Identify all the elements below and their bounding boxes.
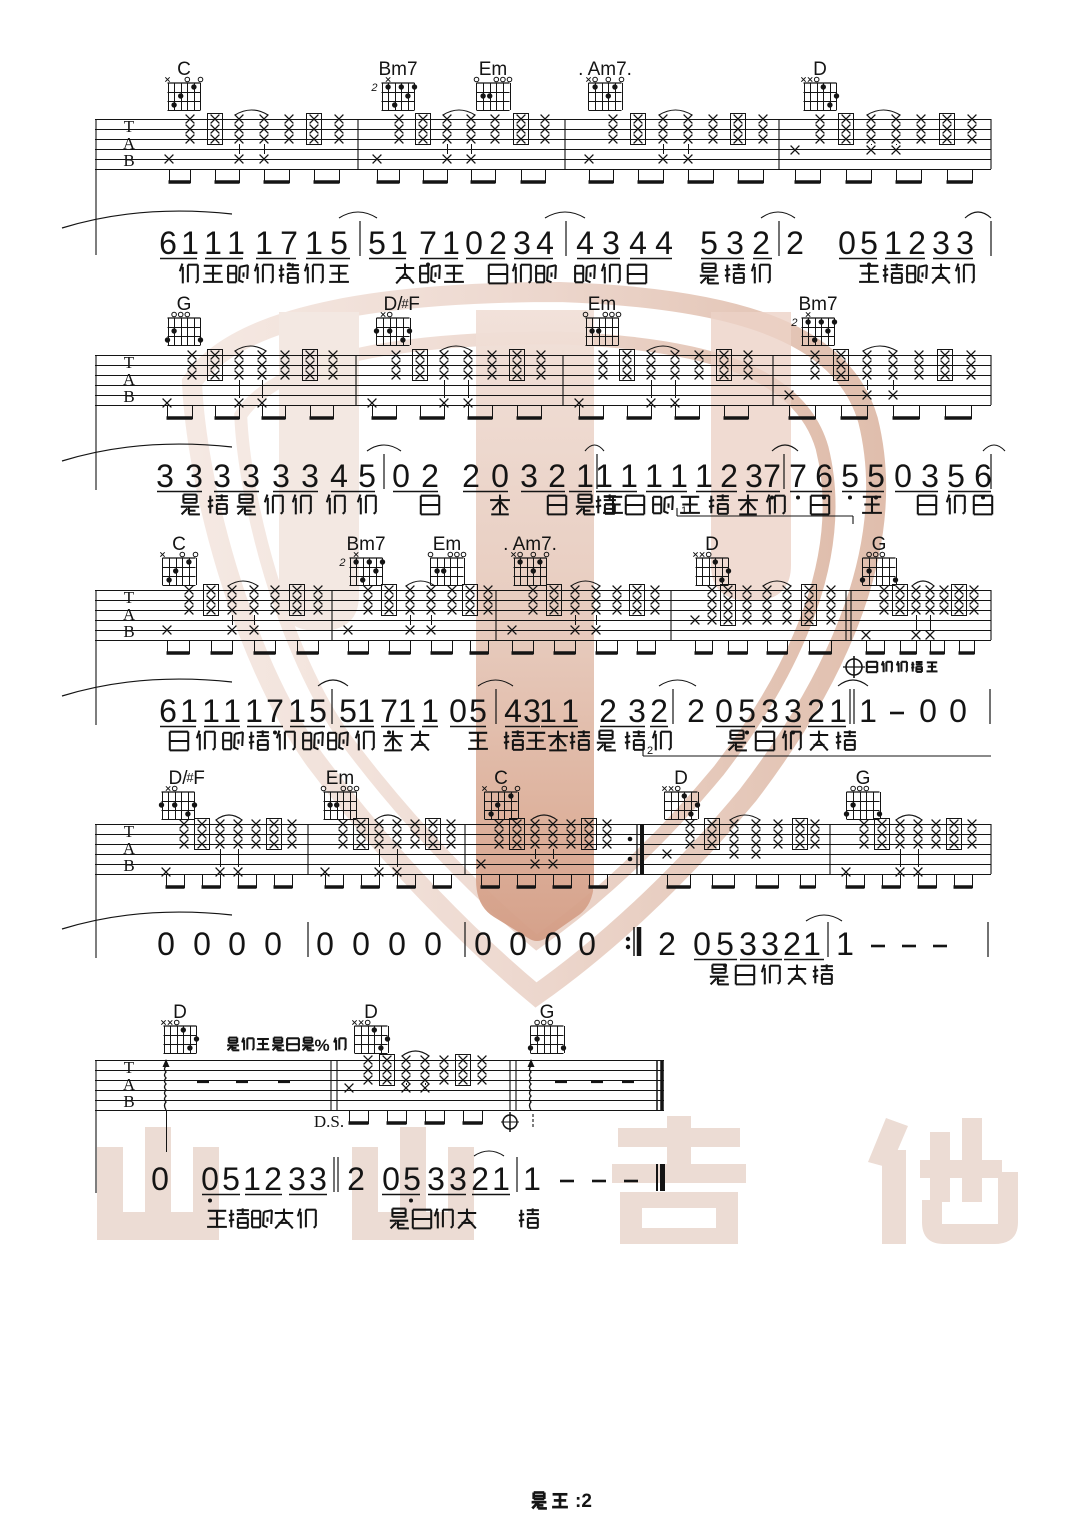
svg-text:3: 3: [956, 225, 974, 261]
svg-text:1: 1: [576, 458, 594, 494]
svg-text::2: :2: [575, 1491, 592, 1512]
svg-text:0: 0: [838, 225, 856, 261]
svg-text:1: 1: [288, 693, 306, 729]
svg-text:2: 2: [471, 1161, 489, 1197]
svg-text:7: 7: [763, 458, 781, 494]
svg-text:4: 4: [576, 225, 594, 261]
svg-text:6: 6: [159, 225, 177, 261]
svg-text:3: 3: [513, 225, 531, 261]
svg-text:0: 0: [352, 926, 370, 962]
svg-text:7: 7: [380, 693, 398, 729]
svg-text:1: 1: [539, 693, 557, 729]
svg-text:Bm7: Bm7: [798, 294, 837, 315]
svg-text:1: 1: [204, 225, 222, 261]
svg-text:3: 3: [242, 458, 260, 494]
svg-text:3: 3: [185, 458, 203, 494]
svg-text:5: 5: [330, 225, 348, 261]
svg-text:2: 2: [647, 745, 653, 757]
svg-text:2: 2: [489, 225, 507, 261]
svg-text:3: 3: [309, 1161, 327, 1197]
svg-text:0: 0: [157, 926, 175, 962]
svg-text:C: C: [177, 59, 191, 80]
svg-text:2: 2: [338, 557, 345, 569]
svg-text:3: 3: [726, 225, 744, 261]
svg-text:5: 5: [469, 693, 487, 729]
svg-text:4: 4: [536, 225, 554, 261]
svg-text:3: 3: [932, 225, 950, 261]
svg-text:1: 1: [181, 225, 199, 261]
svg-text:1: 1: [255, 225, 273, 261]
svg-text:2: 2: [347, 1161, 365, 1197]
svg-text:5: 5: [358, 458, 376, 494]
svg-text:3: 3: [602, 225, 620, 261]
svg-text:3: 3: [520, 458, 538, 494]
svg-text:3: 3: [156, 458, 174, 494]
svg-text:7: 7: [419, 225, 437, 261]
svg-text:B: B: [123, 387, 134, 406]
svg-text:2: 2: [599, 693, 617, 729]
svg-text:D: D: [364, 1002, 378, 1023]
svg-text:3: 3: [739, 926, 757, 962]
svg-text:1: 1: [523, 1161, 541, 1197]
svg-text:2: 2: [783, 926, 801, 962]
svg-text:B: B: [123, 856, 134, 875]
svg-text:2: 2: [658, 926, 676, 962]
svg-text:6: 6: [159, 693, 177, 729]
svg-text:4: 4: [504, 693, 522, 729]
svg-text:D: D: [674, 768, 688, 789]
svg-text:D/: D/: [384, 294, 404, 315]
svg-text:2: 2: [807, 693, 825, 729]
svg-text:0: 0: [392, 458, 410, 494]
svg-text:4: 4: [629, 225, 647, 261]
svg-text:D/: D/: [169, 768, 189, 789]
svg-text:2: 2: [752, 225, 770, 261]
svg-text:2: 2: [687, 693, 705, 729]
svg-text:5: 5: [222, 1161, 240, 1197]
svg-text:5: 5: [841, 458, 859, 494]
svg-text:0: 0: [693, 926, 711, 962]
svg-text:0: 0: [491, 458, 509, 494]
svg-text:0: 0: [894, 458, 912, 494]
svg-text:B: B: [123, 622, 134, 641]
svg-text:1: 1: [595, 458, 613, 494]
svg-text:0: 0: [474, 926, 492, 962]
svg-text:7: 7: [789, 458, 807, 494]
svg-text:1: 1: [836, 926, 854, 962]
svg-text:0: 0: [388, 926, 406, 962]
svg-text:5: 5: [403, 1161, 421, 1197]
svg-text:1: 1: [859, 693, 877, 729]
svg-text:1: 1: [227, 225, 245, 261]
svg-text:3: 3: [288, 1161, 306, 1197]
svg-text:0: 0: [151, 1161, 169, 1197]
svg-text:D: D: [705, 534, 719, 555]
svg-text:1: 1: [223, 693, 241, 729]
svg-text:5: 5: [700, 225, 718, 261]
svg-text:1: 1: [442, 225, 460, 261]
svg-text:3: 3: [921, 458, 939, 494]
svg-text:3: 3: [628, 693, 646, 729]
svg-text:1: 1: [670, 458, 688, 494]
svg-text:1: 1: [305, 225, 323, 261]
svg-text:3: 3: [784, 693, 802, 729]
svg-text:2: 2: [421, 458, 439, 494]
svg-text:5: 5: [309, 693, 327, 729]
svg-text:F: F: [193, 768, 205, 789]
svg-text:0: 0: [193, 926, 211, 962]
svg-text:2: 2: [908, 225, 926, 261]
svg-text:4: 4: [330, 458, 348, 494]
svg-text:3: 3: [427, 1161, 445, 1197]
svg-text:2: 2: [786, 225, 804, 261]
svg-text:0: 0: [424, 926, 442, 962]
svg-text:2: 2: [548, 458, 566, 494]
svg-text:3: 3: [301, 458, 319, 494]
svg-text:4: 4: [655, 225, 673, 261]
svg-text:1: 1: [398, 693, 416, 729]
svg-text:0: 0: [382, 1161, 400, 1197]
svg-text:0: 0: [316, 926, 334, 962]
svg-text:5: 5: [947, 458, 965, 494]
svg-text:1: 1: [357, 693, 375, 729]
svg-text:1: 1: [243, 1161, 261, 1197]
svg-text:. Am7.: . Am7.: [503, 534, 557, 555]
svg-text:1: 1: [180, 693, 198, 729]
svg-text:B: B: [123, 1092, 134, 1111]
svg-text:5: 5: [738, 693, 756, 729]
svg-text:B: B: [123, 151, 134, 170]
svg-text:G: G: [177, 294, 192, 315]
svg-text:3: 3: [272, 458, 290, 494]
svg-text:0: 0: [264, 926, 282, 962]
svg-text:%: %: [314, 1036, 329, 1055]
svg-text:2: 2: [650, 693, 668, 729]
svg-text:G: G: [872, 534, 887, 555]
svg-text:2: 2: [462, 458, 480, 494]
svg-text:0: 0: [578, 926, 596, 962]
svg-text:0: 0: [465, 225, 483, 261]
svg-text:1: 1: [421, 693, 439, 729]
svg-text:0: 0: [201, 1161, 219, 1197]
svg-text:1: 1: [561, 693, 579, 729]
svg-text:7: 7: [266, 693, 284, 729]
svg-text:7: 7: [280, 225, 298, 261]
svg-text:1: 1: [620, 458, 638, 494]
svg-text:2: 2: [720, 458, 738, 494]
svg-text:5: 5: [368, 225, 386, 261]
svg-text:0: 0: [949, 693, 967, 729]
svg-text:5: 5: [716, 926, 734, 962]
svg-text:C: C: [494, 768, 508, 789]
svg-text:Bm7: Bm7: [346, 534, 385, 555]
svg-text:5: 5: [860, 225, 878, 261]
svg-text:G: G: [856, 768, 871, 789]
svg-text:D: D: [813, 59, 827, 80]
svg-text:1: 1: [681, 505, 687, 517]
svg-text:0: 0: [715, 693, 733, 729]
svg-text:D.S.: D.S.: [314, 1112, 344, 1131]
svg-text:3: 3: [761, 926, 779, 962]
svg-text:1: 1: [803, 926, 821, 962]
svg-text:1: 1: [695, 458, 713, 494]
svg-text:0: 0: [449, 693, 467, 729]
svg-text:1: 1: [645, 458, 663, 494]
svg-text:1: 1: [245, 693, 263, 729]
svg-text:2: 2: [370, 82, 377, 94]
svg-text:5: 5: [339, 693, 357, 729]
svg-text:1: 1: [202, 693, 220, 729]
svg-text:6: 6: [815, 458, 833, 494]
svg-text:1: 1: [492, 1161, 510, 1197]
svg-text:6: 6: [974, 458, 992, 494]
svg-text:1: 1: [884, 225, 902, 261]
svg-text:3: 3: [761, 693, 779, 729]
svg-text:3: 3: [449, 1161, 467, 1197]
svg-text:5: 5: [867, 458, 885, 494]
svg-text:3: 3: [745, 458, 763, 494]
svg-text:1: 1: [829, 693, 847, 729]
svg-text:0: 0: [509, 926, 527, 962]
svg-text:2: 2: [790, 317, 797, 329]
svg-text:Bm7: Bm7: [378, 59, 417, 80]
svg-text:D: D: [173, 1002, 187, 1023]
svg-text:0: 0: [919, 693, 937, 729]
svg-text:F: F: [408, 294, 420, 315]
svg-text:0: 0: [544, 926, 562, 962]
svg-text:C: C: [172, 534, 186, 555]
svg-text:2: 2: [264, 1161, 282, 1197]
svg-text:0: 0: [228, 926, 246, 962]
svg-text:G: G: [540, 1002, 555, 1023]
svg-text:1: 1: [390, 225, 408, 261]
svg-text:3: 3: [213, 458, 231, 494]
svg-text:. Am7.: . Am7.: [578, 59, 632, 80]
